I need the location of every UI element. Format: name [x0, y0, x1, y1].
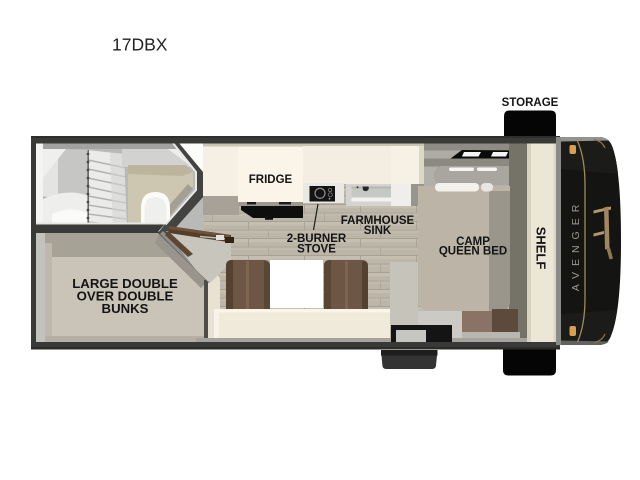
- svg-text:FRIDGE: FRIDGE: [249, 174, 293, 186]
- svg-text:STORAGE: STORAGE: [502, 97, 559, 109]
- svg-text:SHELF: SHELF: [534, 227, 549, 270]
- svg-text:BUNKS: BUNKS: [102, 301, 149, 316]
- svg-text:17DBX: 17DBX: [112, 35, 168, 55]
- svg-text:QUEEN BED: QUEEN BED: [439, 246, 507, 258]
- svg-text:AVENGER: AVENGER: [570, 199, 582, 292]
- svg-text:STOVE: STOVE: [297, 244, 336, 256]
- svg-text:SINK: SINK: [364, 225, 392, 237]
